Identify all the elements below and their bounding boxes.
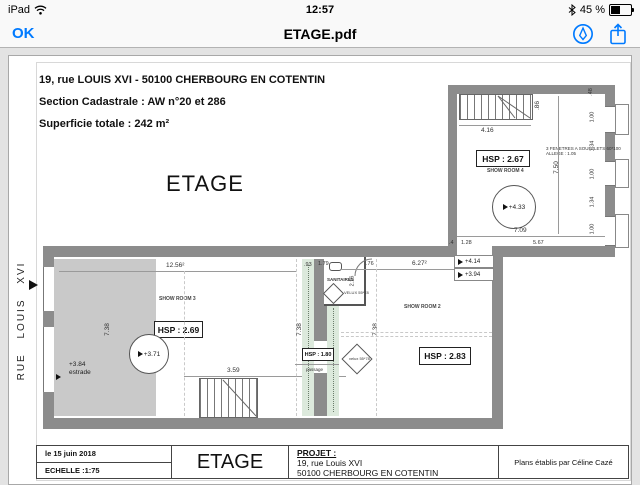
street-label: RUE LOUIS XVI (16, 246, 30, 396)
estrade-flag-icon (56, 374, 61, 380)
dashed-guide (184, 271, 185, 416)
level-flag-icon (138, 351, 143, 357)
plan-scale: ECHELLE :1:75 (37, 463, 171, 479)
sanitaires-height-dim: 2.16 (349, 276, 355, 287)
passage-arrow-line (295, 364, 339, 365)
annex-window (605, 161, 615, 186)
annex-stairs-width-dim: 4.16 (481, 127, 494, 134)
annex-height-dim: 7.50 (553, 161, 560, 174)
main-stairs-dim: 3.59 (227, 367, 240, 374)
right-room-label: SHOW ROOM 2 (404, 304, 441, 310)
battery-icon (609, 4, 632, 16)
estrade-label: +3.84estrade (69, 361, 91, 377)
main-height-dim: 7.38 (104, 323, 111, 336)
entrance-arrow-icon (29, 280, 38, 290)
project-address-1: 19, rue Louis XVI (297, 458, 498, 468)
dashed-guide (376, 259, 377, 416)
door-arc (353, 257, 373, 277)
dim-line (341, 269, 454, 270)
annex-right-dim: 1.00 (589, 112, 595, 123)
dim-line (459, 125, 531, 126)
annex-room-label: SHOW ROOM 4 (487, 168, 524, 174)
annex-window (605, 216, 615, 246)
title-block: le 15 juin 2018 ECHELLE :1:75 ETAGE PROJ… (36, 445, 629, 479)
status-bar: iPad 12:57 45 % (0, 0, 640, 20)
main-width-dim: 12.56² (166, 262, 184, 269)
pdf-page[interactable]: 19, rue LOUIS XVI - 50100 CHERBOURG EN C… (8, 55, 632, 485)
main-level-marker: +3.71 (129, 334, 169, 374)
main-hsp-label: HSP : 2.69 (154, 321, 203, 338)
project-label: PROJET : (297, 448, 498, 458)
velux-label: velux 55*78 (349, 356, 370, 361)
annex-window-bay (615, 104, 629, 135)
mid-height-dim: 7.38 (296, 323, 303, 336)
title-block-floor: ETAGE (172, 446, 289, 478)
area-line: Superficie totale : 242 m² (39, 118, 169, 130)
mid-wall-lower (314, 373, 327, 416)
dashed-guide (341, 336, 492, 337)
annex-right-dim: 1.34 (589, 197, 595, 208)
annex-dim-c: 5.67 (533, 240, 544, 246)
clock: 12:57 (0, 4, 640, 16)
level-flag-icon (503, 204, 508, 210)
project-info: PROJET : 19, rue Louis XVI 50100 CHERBOU… (289, 446, 499, 478)
partition-strip (302, 259, 314, 416)
annex-right-dim: 1.00 (589, 169, 595, 180)
annex-window-bay (615, 159, 629, 188)
annex-width-dim: 7.09 (514, 227, 527, 234)
annex-window-bay (615, 214, 629, 248)
level-box: +3.94 (454, 268, 494, 281)
project-address-2: 50100 CHERBOURG EN COTENTIN (297, 468, 498, 478)
right-hsp-label: HSP : 2.83 (419, 347, 471, 365)
sanitaires-door-dim: .76 (366, 261, 374, 267)
share-icon[interactable] (608, 22, 628, 46)
annex-right-dim: 1.34 (589, 141, 595, 152)
markup-icon[interactable] (572, 23, 594, 45)
annex-stairs (459, 94, 533, 120)
cadastre-line: Section Cadastrale : AW n°20 et 286 (39, 96, 226, 108)
velux-label: VELUX 55*78 (344, 290, 369, 295)
dim-line (59, 271, 296, 272)
level-flag-icon (458, 272, 463, 278)
annex-level-marker: +4.33 (492, 185, 536, 229)
level-box: +4.14 (454, 255, 494, 268)
main-stairs (199, 378, 258, 418)
main-room-label: SHOW ROOM 3 (159, 296, 196, 302)
sanitaires-width-dim: 1.79 (318, 261, 329, 267)
annex-right-dim: 1.00 (589, 224, 595, 235)
annex-window (605, 106, 615, 133)
right-width-dim: 6.27² (412, 260, 427, 267)
passage-label: passage (306, 367, 323, 372)
address-line: 19, rue LOUIS XVI - 50100 CHERBOURG EN C… (39, 74, 325, 86)
annex-hsp-label: HSP : 2.67 (476, 150, 530, 167)
level-flag-icon (458, 259, 463, 265)
annex-right-dim: .48 (588, 88, 594, 96)
plan-date: le 15 juin 2018 (37, 446, 171, 463)
plan-credit: Plans établis par Céline Cazé (499, 446, 628, 478)
dashed-guide (296, 259, 297, 416)
dim-line (457, 236, 605, 237)
mid-top-dim: .93 (304, 262, 312, 268)
pdf-toolbar: OK ETAGE.pdf (0, 20, 640, 48)
document-title: ETAGE.pdf (0, 26, 640, 42)
floor-title: ETAGE (166, 171, 244, 197)
passage-hsp-label: HSP : 1.80 (302, 348, 334, 361)
annex-stairs-height-dim: .86 (534, 101, 541, 110)
dashed-guide (341, 332, 492, 333)
